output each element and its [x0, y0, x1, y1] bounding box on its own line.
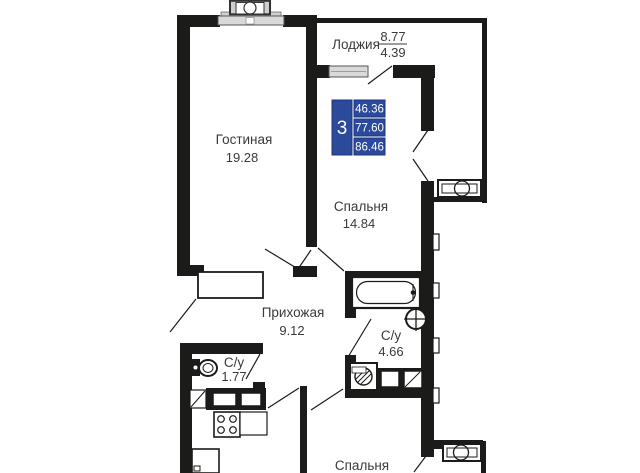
wardrobe: [198, 272, 263, 298]
living-room-door: [265, 249, 298, 269]
bedroom2-door: [311, 389, 343, 410]
kitchen-cabinet: [213, 393, 236, 406]
badge-room-count: 3: [337, 118, 348, 139]
bathroom-cabinet: [381, 371, 399, 387]
toilet: [191, 359, 217, 376]
bottom-window-box: [443, 444, 481, 461]
kitchen-cabinet: [241, 393, 261, 406]
badge-area-value: 77.60: [355, 123, 384, 135]
label-loggia: Лоджия: [332, 37, 380, 52]
floor-plan: Лоджия 8.77 4.39 Гостиная 19.28 Спальня …: [0, 0, 640, 473]
living-room-window: [218, 16, 284, 25]
area-hallway: 9.12: [279, 323, 304, 338]
stove: [214, 412, 240, 437]
bathroom1-door: [348, 319, 371, 357]
label-hallway: Прихожая: [262, 305, 325, 320]
apartment-info-badge: 3 46.36 77.60 86.46: [332, 100, 385, 155]
area-bathroom-1: 4.66: [378, 344, 403, 359]
floor-plan-page: Лоджия 8.77 4.39 Гостиная 19.28 Спальня …: [0, 0, 640, 473]
fixtures: [190, 180, 481, 473]
badge-area-value: 46.36: [355, 104, 384, 116]
area-loggia-upper: 8.77: [380, 29, 405, 44]
wall-bump: [433, 338, 439, 353]
loggia-window: [329, 66, 368, 77]
label-bedroom-1: Спальня: [334, 199, 388, 214]
wall-bump: [433, 283, 439, 298]
badge-area-value: 86.46: [355, 142, 384, 154]
bathroom2-door: [246, 354, 260, 379]
bedroom1-door: [318, 248, 344, 271]
loggia-window-box: [438, 180, 481, 197]
corner-sink: [190, 390, 206, 408]
bathroom-corner-cabinet: [404, 371, 422, 388]
label-bathroom-2: С/у: [224, 355, 245, 370]
wall-bump: [433, 234, 439, 250]
kitchen-sink: [192, 449, 219, 473]
label-bedroom-2: Спальня: [335, 458, 389, 473]
kitchen-counter: [240, 412, 267, 435]
kitchen-door: [268, 388, 299, 408]
area-bedroom-1: 14.84: [343, 216, 376, 231]
label-living-room: Гостиная: [216, 132, 273, 147]
area-living-room: 19.28: [226, 150, 259, 165]
balcony-door: [368, 66, 392, 84]
area-loggia-lower: 4.39: [380, 45, 405, 60]
entry-door: [170, 299, 196, 332]
loggia-side-door: [413, 159, 428, 181]
loggia-side-door: [413, 130, 428, 152]
wall-bump: [433, 388, 439, 403]
label-bathroom-1: С/у: [381, 328, 402, 343]
boiler-box: [352, 367, 366, 373]
bathtub: [352, 277, 420, 308]
area-bathroom-2: 1.77: [221, 369, 246, 384]
